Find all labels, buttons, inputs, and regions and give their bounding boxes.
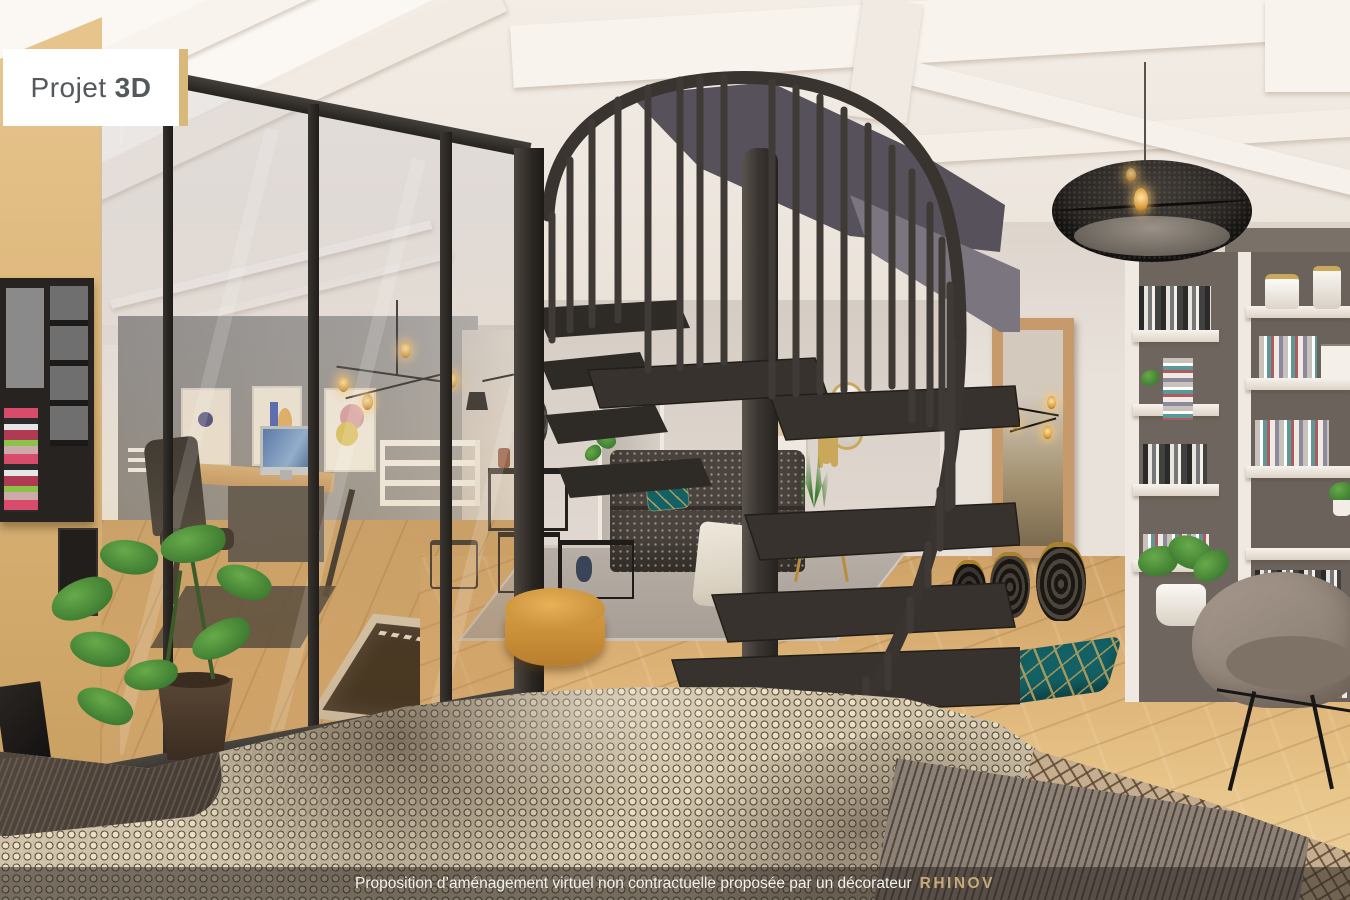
- pendant-bulb: [1126, 168, 1136, 182]
- plant-leaf: [66, 624, 133, 673]
- books-stack: [1163, 358, 1193, 420]
- bookshelf-shelf: [1246, 378, 1350, 390]
- books-row: [1259, 336, 1317, 378]
- brand-logo-text: RHINOV: [920, 875, 995, 893]
- books-row: [1143, 444, 1207, 484]
- plant-pot-small: [1333, 500, 1350, 516]
- bookshelf-shelf: [1133, 484, 1219, 496]
- apartment-3d-render: Proposition d’aménagement virtuel non co…: [0, 0, 1350, 900]
- plant-leaf: [72, 678, 138, 733]
- shelf-unit-panel: [6, 288, 44, 388]
- reflected-bulb: [1047, 396, 1056, 409]
- plant-leaf: [186, 612, 256, 667]
- book-spines: [4, 408, 38, 512]
- storage-box: [1321, 344, 1350, 378]
- shelf-plant: [1329, 482, 1350, 502]
- woven-vase: [1036, 542, 1086, 621]
- partition-mullion: [308, 104, 319, 794]
- pendant-lamp: [1052, 160, 1252, 262]
- shelf-unit-drawers: [50, 286, 88, 446]
- plant-leaf: [46, 571, 119, 627]
- bookshelf-shelf: [1133, 330, 1219, 342]
- armchair-cushion: [1226, 636, 1350, 690]
- black-shelf-unit: [0, 278, 94, 522]
- plant-stem: [189, 551, 216, 680]
- badge-label: Projet: [31, 72, 107, 104]
- books-row: [1255, 420, 1329, 466]
- caption-text: Proposition d’aménagement virtuel non co…: [355, 875, 912, 893]
- pendant-inner-rim: [1074, 216, 1230, 256]
- bookshelf-shelf: [1246, 548, 1350, 560]
- bookshelf-shelf: [1246, 466, 1350, 478]
- ottoman-pouf-top: [505, 588, 605, 630]
- plant-leaf: [212, 556, 276, 608]
- shelf-plant: [1141, 370, 1159, 386]
- plant-pot: [152, 678, 238, 760]
- badge-accent-edge: [179, 49, 188, 126]
- reflected-bulb: [1043, 426, 1052, 439]
- plant-leaf: [97, 533, 162, 580]
- jar-gold-lid: [1265, 274, 1299, 309]
- books-row: [1139, 286, 1211, 330]
- pendant-bulb: [1134, 188, 1148, 212]
- project-3d-badge: Projet 3D: [3, 49, 179, 126]
- badge-label-bold: 3D: [115, 72, 152, 104]
- pendant-cord: [1144, 62, 1146, 170]
- ceiling-beam: [1265, 0, 1350, 92]
- caption-bar: Proposition d’aménagement virtuel non co…: [0, 867, 1350, 900]
- jar-gold-lid: [1313, 266, 1341, 309]
